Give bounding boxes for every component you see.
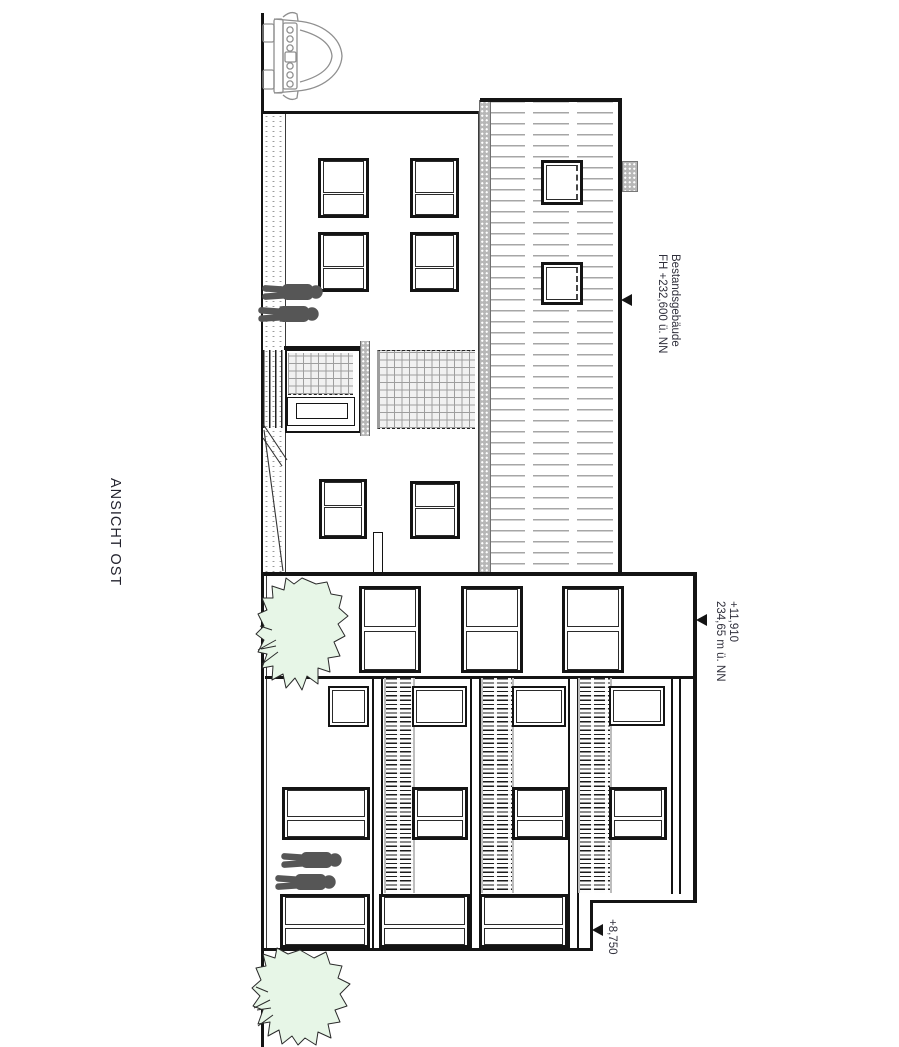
- elevation-drawing: ANSICHT OST Bestandsgebäude FH +232,600 …: [0, 0, 899, 1047]
- slope-lines: [263, 424, 287, 571]
- level-marker-step: [592, 924, 603, 936]
- drawing-overlay: [0, 0, 899, 1047]
- level-marker-parapet: [696, 614, 707, 626]
- level-marker-existing: [621, 294, 632, 306]
- people-icon: [258, 284, 323, 322]
- car-icon: [263, 13, 342, 100]
- people-icon: [275, 852, 342, 890]
- tree-icon: [256, 578, 348, 690]
- tree-icon: [252, 948, 350, 1045]
